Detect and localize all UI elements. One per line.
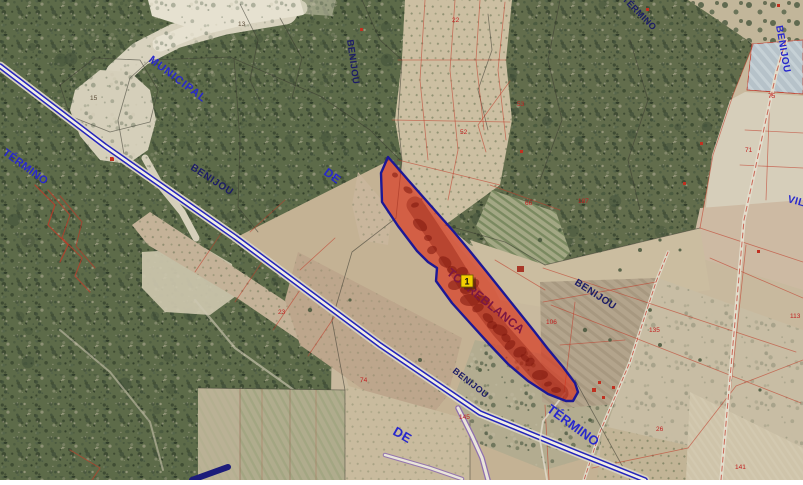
- svg-text:13: 13: [238, 21, 246, 28]
- svg-text:75: 75: [768, 93, 776, 100]
- svg-text:52: 52: [460, 129, 468, 136]
- svg-text:26: 26: [656, 426, 664, 433]
- svg-text:113: 113: [790, 313, 801, 320]
- svg-text:15: 15: [90, 95, 98, 102]
- svg-text:66: 66: [525, 200, 533, 207]
- svg-text:53: 53: [517, 101, 525, 108]
- svg-text:135: 135: [649, 327, 660, 334]
- svg-text:106: 106: [546, 319, 557, 326]
- svg-text:187: 187: [578, 198, 589, 205]
- svg-text:1: 1: [464, 277, 469, 287]
- svg-text:74: 74: [360, 377, 368, 384]
- svg-text:141: 141: [735, 464, 746, 471]
- svg-text:22: 22: [452, 17, 460, 24]
- svg-text:71: 71: [745, 147, 753, 154]
- svg-text:23: 23: [278, 309, 286, 316]
- svg-text:145: 145: [459, 414, 470, 421]
